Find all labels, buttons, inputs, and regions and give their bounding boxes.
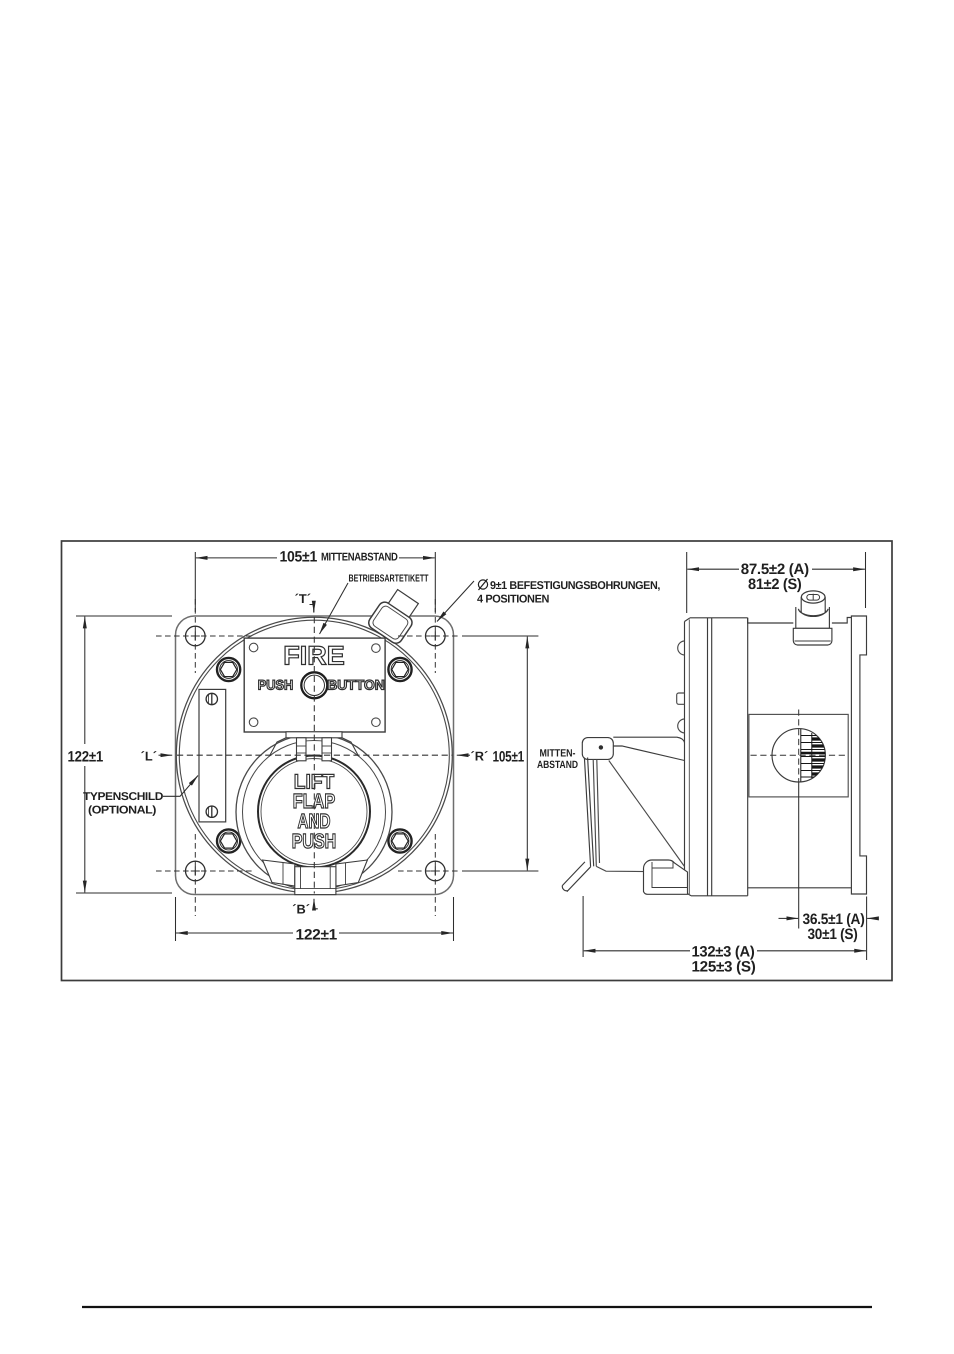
svg-text:´B´: ´B´ xyxy=(292,902,310,917)
svg-text:(OPTIONAL): (OPTIONAL) xyxy=(88,805,157,817)
svg-text:9±1 BEFESTIGUNGSBOHRUNGEN,: 9±1 BEFESTIGUNGSBOHRUNGEN, xyxy=(490,580,660,592)
svg-text:´T´: ´T´ xyxy=(295,591,311,606)
svg-text:125±3 (S): 125±3 (S) xyxy=(692,958,756,975)
svg-text:122±1: 122±1 xyxy=(68,749,104,766)
svg-text:105±1: 105±1 xyxy=(493,749,525,766)
svg-text:´L´: ´L´ xyxy=(141,748,157,763)
svg-text:105±1: 105±1 xyxy=(280,549,318,566)
svg-text:MITTEN-: MITTEN- xyxy=(540,748,576,760)
svg-text:MITTENABSTAND: MITTENABSTAND xyxy=(321,552,398,564)
svg-text:ABSTAND: ABSTAND xyxy=(537,759,578,771)
svg-text:TYPENSCHILD: TYPENSCHILD xyxy=(83,791,163,803)
svg-text:122±1: 122±1 xyxy=(296,927,338,944)
svg-text:81±2 (S): 81±2 (S) xyxy=(748,576,802,593)
svg-text:BETRIEBSARTETIKETT: BETRIEBSARTETIKETT xyxy=(349,574,430,585)
svg-text:4 POSITIONEN: 4 POSITIONEN xyxy=(477,594,549,606)
svg-text:BUTTON: BUTTON xyxy=(327,677,385,692)
svg-text:PUSH: PUSH xyxy=(258,677,294,692)
svg-text:30±1 (S): 30±1 (S) xyxy=(808,926,858,943)
svg-text:´R´: ´R´ xyxy=(471,748,489,763)
